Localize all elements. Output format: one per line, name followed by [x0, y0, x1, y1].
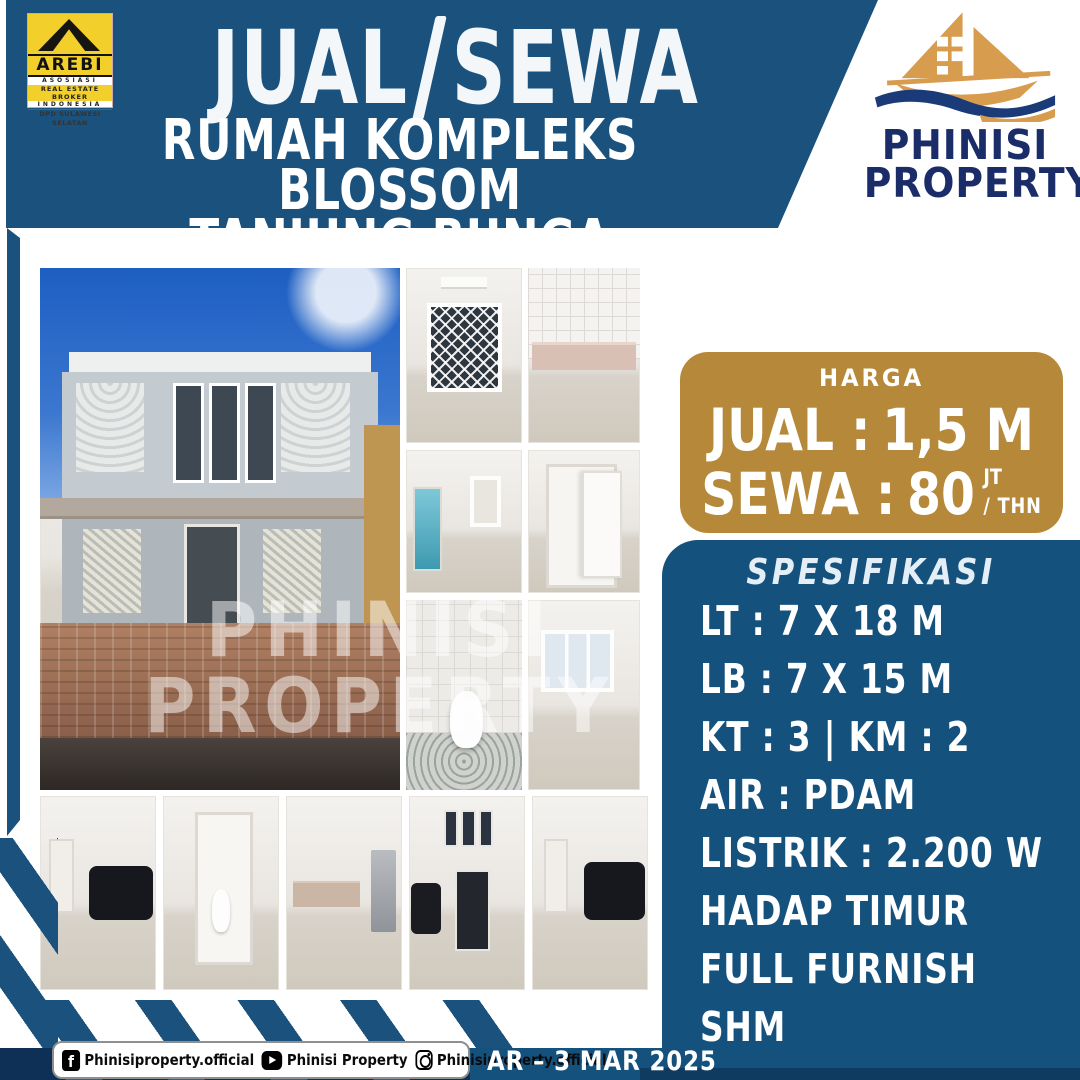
arebi-roof-icon	[38, 19, 100, 51]
spec-item-lt: LT : 7 X 18 M	[700, 592, 1043, 650]
arebi-line2: REAL ESTATE BROKER	[28, 85, 112, 101]
photo-living-room-sofa-2	[532, 796, 648, 990]
facebook-handle: Phinisiproperty.official	[84, 1051, 254, 1069]
sell-label: JUAL :	[709, 396, 870, 464]
specs-list: LT : 7 X 18 M LB : 7 X 15 M KT : 3 | KM …	[700, 592, 1043, 1056]
spec-item-listrik: LISTRIK : 2.200 W	[700, 824, 1043, 882]
youtube-link[interactable]: Phinisi Property	[262, 1051, 408, 1070]
spec-item-hadap: HADAP TIMUR	[700, 882, 1043, 940]
rent-unit: JT	[983, 467, 1041, 488]
specs-title: SPESIFIKASI	[693, 552, 1048, 593]
subtitle-line2: TANJUNG BUNGA	[119, 216, 681, 266]
slash-divider	[412, 16, 447, 120]
rent-unit-stack: JT / THN	[983, 473, 1041, 515]
spec-item-furnish: FULL FURNISH	[700, 940, 1043, 998]
rent-label: SEWA :	[701, 460, 895, 528]
arebi-line4: DPD SULAWESI SELATAN	[28, 109, 112, 128]
spec-item-lb: LB : 7 X 15 M	[700, 650, 1043, 708]
arebi-line3: INDONESIA	[28, 101, 112, 109]
photo-kitchen-fridge	[286, 796, 402, 990]
photo-bathroom-toilet	[406, 600, 522, 790]
sell-price-line: JUAL : 1,5 M	[711, 396, 1033, 464]
social-links-pill: f Phinisiproperty.official Phinisi Prope…	[52, 1041, 470, 1079]
price-box-title: HARGA	[690, 364, 1054, 392]
phinisi-property-logo: PHINISI PROPERTY	[855, 10, 1075, 202]
subtitle-line1: RUMAH KOMPLEKS BLOSSOM	[119, 116, 681, 216]
page-title: JUAL SEWA	[189, 14, 722, 122]
photo-hallway-toilet	[163, 796, 279, 990]
photo-room-window	[528, 600, 640, 790]
brand-line2: PROPERTY	[864, 164, 1066, 202]
photo-kitchen-tiled	[528, 268, 640, 443]
facebook-link[interactable]: f Phinisiproperty.official	[62, 1050, 254, 1071]
rent-period: / THN	[983, 496, 1041, 517]
photo-entry-hall	[409, 796, 525, 990]
instagram-icon	[415, 1050, 432, 1070]
specs-panel: SPESIFIKASI LT : 7 X 18 M LB : 7 X 15 M …	[662, 540, 1080, 1080]
property-subtitle: RUMAH KOMPLEKS BLOSSOM TANJUNG BUNGA	[119, 116, 681, 266]
youtube-icon	[262, 1051, 283, 1070]
youtube-handle: Phinisi Property	[287, 1051, 408, 1069]
property-flyer: JUAL SEWA RUMAH KOMPLEKS BLOSSOM TANJUNG…	[0, 0, 1080, 1080]
arebi-name: AREBI	[28, 54, 112, 77]
agent-date: AR – 3 MAR 2025	[487, 1046, 717, 1077]
arebi-logo: AREBI ASOSIASI REAL ESTATE BROKER INDONE…	[27, 13, 113, 108]
left-edge-stripe	[7, 228, 20, 836]
photo-room-grille-window	[406, 268, 522, 443]
arebi-line1: ASOSIASI	[28, 77, 112, 85]
facebook-icon: f	[62, 1050, 80, 1071]
rent-price-line: SEWA : 80 JT / THN	[711, 460, 1033, 528]
photo-room-blue-door	[406, 450, 522, 593]
sell-value: 1,5 M	[882, 396, 1034, 464]
photo-doorway-white-door	[528, 450, 640, 593]
photo-house-exterior	[40, 268, 400, 790]
spec-item-kt-km: KT : 3 | KM : 2	[700, 708, 1043, 766]
price-box: HARGA JUAL : 1,5 M SEWA : 80 JT / THN	[680, 352, 1063, 533]
phinisi-ship-icon	[865, 10, 1065, 122]
rent-value: 80	[907, 460, 975, 528]
spec-item-air: AIR : PDAM	[700, 766, 1043, 824]
